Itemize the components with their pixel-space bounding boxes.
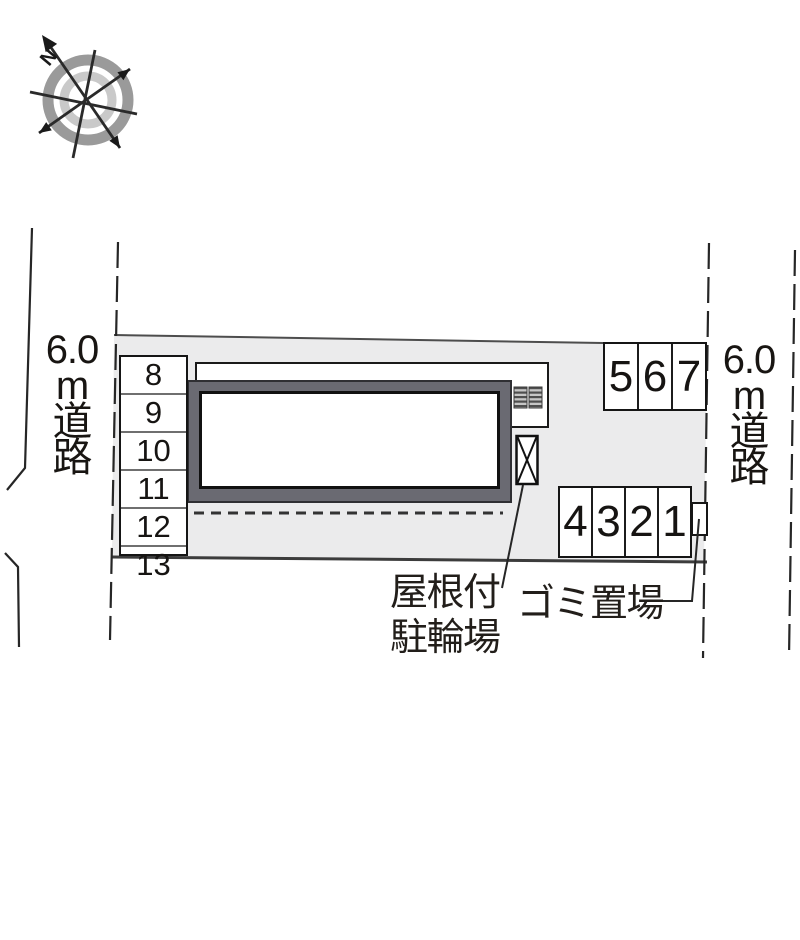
garbage-area-box xyxy=(692,503,707,535)
road-label-line: 道 xyxy=(710,414,788,450)
parking-stall-number: 12 xyxy=(121,509,186,547)
parking-left-column: 8910111213 xyxy=(119,355,188,556)
road-label-line: 6.0 xyxy=(710,342,788,378)
covered-bicycle-parking-line2: 駐輪場 xyxy=(390,616,500,661)
parking-stall-number: 10 xyxy=(121,433,186,471)
parking-stall-number: 4 xyxy=(560,488,593,556)
parking-stall-number: 5 xyxy=(605,344,639,409)
parking-stall-number: 7 xyxy=(673,344,705,409)
road-label-line: m xyxy=(710,378,788,414)
building-interior xyxy=(201,393,499,488)
road-label-line: 6.0 xyxy=(33,332,111,368)
covered-bicycle-parking-line1: 屋根付 xyxy=(390,571,500,616)
parking-top-right-row: 567 xyxy=(603,342,707,411)
covered-bicycle-parking-label: 屋根付 駐輪場 xyxy=(390,571,500,661)
site-plan-canvas: N 8910111213 567 4321 6.0m道路 6.0m道路 屋根付 … xyxy=(0,0,800,940)
parking-stall-number: 2 xyxy=(626,488,659,556)
garbage-area-label: ゴミ置場 xyxy=(517,582,663,627)
parking-stall-number: 6 xyxy=(639,344,673,409)
road-label-line: 道 xyxy=(33,404,111,440)
parking-bottom-right-row: 4321 xyxy=(558,486,692,558)
parking-stall-number: 1 xyxy=(659,488,690,556)
road-label-line: 路 xyxy=(33,440,111,476)
parking-stall-number: 3 xyxy=(593,488,626,556)
compass-icon: N xyxy=(30,35,137,158)
road-label-right: 6.0m道路 xyxy=(710,342,788,486)
parking-stall-number: 8 xyxy=(121,357,186,395)
road-label-left: 6.0m道路 xyxy=(33,332,111,476)
road-label-line: m xyxy=(33,368,111,404)
stairs-hatch-icon xyxy=(529,387,542,408)
parking-stall-number: 9 xyxy=(121,395,186,433)
road-label-line: 路 xyxy=(710,450,788,486)
stairs-hatch-icon xyxy=(514,387,527,408)
bicycle-parking-marker xyxy=(517,436,538,484)
parking-stall-number: 11 xyxy=(121,471,186,509)
parking-stall-number: 13 xyxy=(121,547,186,583)
